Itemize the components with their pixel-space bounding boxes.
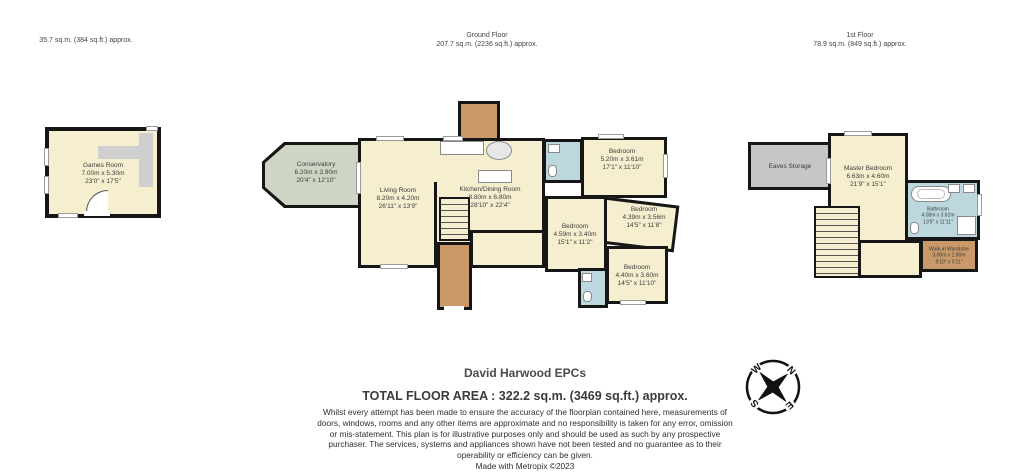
chimney-breast <box>98 146 141 159</box>
window <box>44 176 49 194</box>
internal-wall <box>470 230 473 268</box>
room-label: Bedroom 4.59m x 3.40m 15'1" x 11'2" <box>554 223 597 247</box>
internal-wall <box>434 182 437 268</box>
room-label: Eaves Storage <box>769 163 812 171</box>
door-opening <box>84 211 110 216</box>
room-label: Kitchen/Dining Room 8.80m x 6.80m 28'10"… <box>459 186 520 210</box>
door-opening <box>444 306 464 311</box>
room-entrance-hall <box>437 242 472 310</box>
credit-text: Made with Metropix ©2023 <box>315 461 735 472</box>
company-name: David Harwood EPCs <box>315 366 735 380</box>
window <box>663 154 668 178</box>
room-label: Bathroom 4.08m x 3.62m 13'5" x 11'11" <box>921 207 954 226</box>
room-label: Master Bedroom 6.63m x 4.60m 21'9" x 15'… <box>844 165 892 189</box>
window <box>376 136 404 141</box>
shower <box>957 216 976 235</box>
toilet <box>548 165 557 177</box>
room-label: Bedroom 4.40m x 3.60m 14'5" x 11'10" <box>616 264 659 288</box>
toilet <box>910 222 919 234</box>
window <box>380 264 408 269</box>
room-porch <box>458 101 500 141</box>
room-landing <box>858 240 922 278</box>
window <box>598 134 624 139</box>
first-floor-title: 1st Floor <box>846 32 873 39</box>
sink <box>963 184 975 193</box>
outbuilding-area-label: 35.7 sq.m. (384 sq.ft.) approx. <box>39 36 132 45</box>
sink <box>948 184 960 193</box>
first-floor-area-text: 78.9 sq.m. (849 sq.ft.) approx. <box>813 40 906 49</box>
room-label: Bedroom 5.20m x 3.61m 17'1" x 11'10" <box>601 148 644 172</box>
disclaimer-text: Whilst every attempt has been made to en… <box>315 407 735 461</box>
chimney-breast <box>139 133 153 187</box>
internal-wall <box>470 230 545 233</box>
ground-floor-area-text: 207.7 sq.m. (2236 sq.ft.) approx. <box>436 40 537 49</box>
window <box>58 213 78 218</box>
compass-icon: N E S W <box>740 354 806 420</box>
room-label: Bedroom 4.39m x 3.56m 14'5" x 11'8" <box>623 206 666 230</box>
window <box>977 194 982 216</box>
window <box>356 162 361 194</box>
floorplan-canvas: 35.7 sq.m. (384 sq.ft.) approx. Ground F… <box>0 0 1024 475</box>
sink <box>548 144 560 153</box>
stairs <box>814 206 860 278</box>
kitchen-island <box>478 170 512 183</box>
window <box>826 158 831 184</box>
window <box>620 300 646 305</box>
window <box>146 126 158 131</box>
outbuilding-area-text: 35.7 sq.m. (384 sq.ft.) approx. <box>39 37 132 44</box>
room-label: Living Room 8.20m x 4.20m 26'11" x 13'9" <box>377 187 420 211</box>
total-floor-area: TOTAL FLOOR AREA : 322.2 sq.m. (3469 sq.… <box>315 389 735 403</box>
footer: David Harwood EPCs TOTAL FLOOR AREA : 32… <box>315 366 735 472</box>
room-label: Games Room 7.00m x 5.30m 23'0" x 17'5" <box>82 162 125 186</box>
first-floor-label: 1st Floor 78.9 sq.m. (849 sq.ft.) approx… <box>813 31 906 49</box>
sink <box>582 273 592 282</box>
bathtub-inner <box>917 189 945 199</box>
room-label: Conservatory 6.20m x 3.90m 20'4" x 12'10… <box>295 161 338 185</box>
ground-floor-label: Ground Floor 207.7 sq.m. (2236 sq.ft.) a… <box>436 31 537 49</box>
ground-floor-title: Ground Floor <box>466 32 507 39</box>
kitchen-counter <box>440 141 484 155</box>
room-label: Walk-in Wardrobe 3.00m x 1.80m 9'10" x 5… <box>929 247 969 266</box>
window <box>844 131 872 136</box>
dining-table <box>486 141 512 160</box>
toilet <box>583 291 592 302</box>
window <box>44 148 49 166</box>
